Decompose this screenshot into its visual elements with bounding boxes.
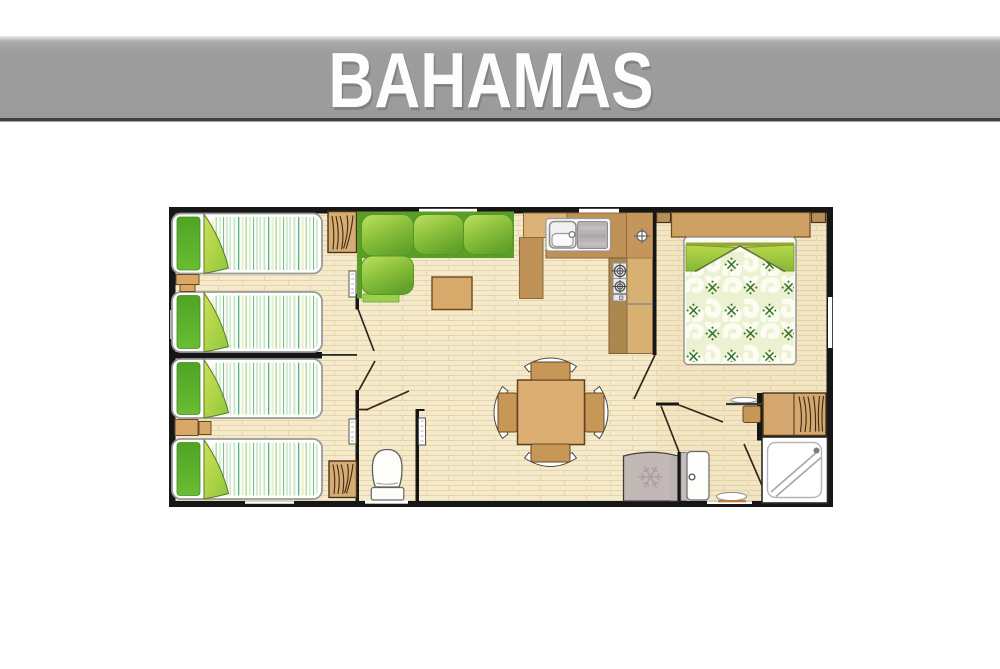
svg-text:BAHAMAS: BAHAMAS <box>328 38 653 125</box>
